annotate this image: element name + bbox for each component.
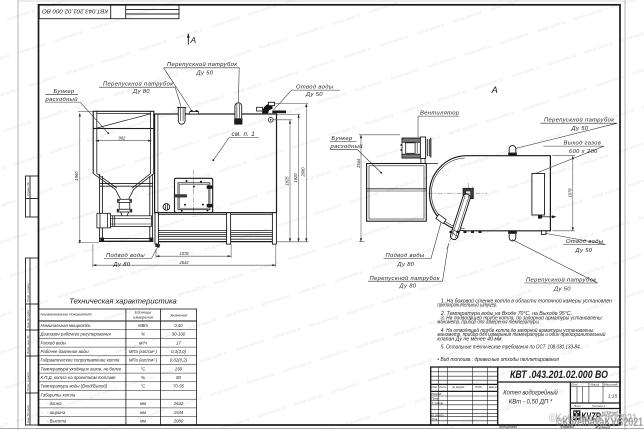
svg-text:70-95: 70-95 (173, 384, 185, 389)
svg-text:Лит.: Лит. (570, 383, 578, 387)
svg-text:Лист: Лист (573, 404, 582, 408)
svg-text:600 х 200: 600 х 200 (569, 149, 598, 155)
svg-text:2080: 2080 (173, 419, 184, 424)
svg-text:м³/ч: м³/ч (139, 340, 148, 345)
svg-text:17: 17 (176, 340, 181, 345)
svg-text:КВТ .043.201.02.000 ВО: КВТ .043.201.02.000 ВО (510, 369, 609, 381)
svg-text:А: А (491, 85, 498, 96)
svg-text:30-100: 30-100 (172, 332, 186, 337)
svg-text:Подп. и дата: Подп. и дата (26, 372, 30, 391)
svg-text:Перепускной патрубок: Перепускной патрубок (526, 276, 596, 283)
svg-text:Габариты котла: Габариты котла (41, 392, 76, 397)
svg-text:КВТ.043.201.02.000 ВО: КВТ.043.201.02.000 ВО (41, 8, 108, 14)
svg-text:0,02(0,2): 0,02(0,2) (170, 358, 188, 363)
svg-text:Масса: Масса (591, 383, 600, 387)
svg-text:- длина: - длина (47, 401, 62, 406)
svg-text:Диапазон рабочего регулировани: Диапазон рабочего регулирования (40, 332, 112, 337)
svg-text:мм: мм (140, 419, 146, 424)
svg-text:МВт: МВт (138, 323, 148, 328)
svg-text:- ширина: - ширина (47, 410, 66, 415)
svg-text:%: % (141, 375, 145, 380)
svg-text:Ду 50: Ду 50 (571, 126, 589, 132)
svg-text:см. п. 1: см. п. 1 (232, 131, 255, 138)
svg-text:Бункер: Бункер (54, 89, 75, 95)
svg-text:1920: 1920 (293, 173, 298, 183)
svg-text:Номинальная мощность: Номинальная мощность (41, 323, 92, 328)
svg-text:Отвод воды: Отвод воды (566, 239, 604, 245)
svg-text:А: А (190, 35, 197, 45)
svg-text:Расход воды: Расход воды (41, 340, 67, 345)
svg-text:80: 80 (176, 375, 181, 380)
svg-text:Ду 80: Ду 80 (132, 89, 150, 95)
svg-text:• Вид топлива : древесные от: • Вид топлива : древесные отходы пеллети… (437, 357, 559, 363)
svg-text:Подвод воды: Подвод воды (106, 253, 145, 259)
svg-text:КВт - 0,50 ДП *: КВт - 0,50 ДП * (509, 398, 553, 405)
svg-text:230: 230 (174, 366, 183, 371)
svg-text:Подп.: Подп. (475, 385, 483, 389)
svg-text:1544: 1544 (356, 158, 361, 168)
svg-text:Копировал: Копировал (499, 425, 517, 429)
svg-text:Техническая характеристика: Техническая характеристика (69, 297, 177, 306)
svg-text:измерения: измерения (133, 315, 154, 320)
svg-text:1960: 1960 (74, 171, 79, 181)
svg-text:Выход газов: Выход газов (564, 141, 602, 147)
svg-text:Лист: Лист (438, 385, 447, 389)
svg-text:МПа (кгс/см² ): МПа (кгс/см² ) (129, 358, 158, 363)
svg-text:Подп. и дата: Подп. и дата (26, 283, 30, 302)
svg-text:1078: 1078 (567, 188, 572, 198)
svg-text:Значение: Значение (170, 313, 188, 318)
svg-text:Справ. №: Справ. № (26, 182, 30, 196)
svg-text:Рудный: Рудный (596, 424, 611, 429)
svg-text:2642: 2642 (173, 401, 184, 406)
svg-text:Дата: Дата (488, 385, 497, 389)
svg-text:Листов 1: Листов 1 (591, 404, 605, 408)
svg-text:Перепускной патрубок: Перепускной патрубок (167, 61, 237, 68)
svg-text:мм: мм (140, 410, 146, 415)
svg-text:Утв.: Утв. (432, 417, 439, 421)
svg-text:Перепускной патрубок: Перепускной патрубок (103, 81, 173, 88)
svg-text:расходный: расходный (45, 96, 79, 103)
svg-text:1078: 1078 (179, 251, 189, 256)
svg-text:Ду 80: Ду 80 (397, 262, 415, 268)
svg-text:2080: 2080 (301, 167, 306, 178)
svg-text:Ду 80: Ду 80 (113, 262, 131, 268)
svg-text:Котел водогрейный: Котел водогрейный (503, 388, 558, 396)
svg-text:№ докум.: № докум. (452, 385, 465, 389)
svg-text:мм: мм (140, 401, 146, 406)
svg-text:Гидравлическое сопротивление к: Гидравлическое сопротивление котла (41, 358, 121, 363)
svg-text:- Высота: - Высота (47, 419, 67, 424)
svg-text:Ду 50: Ду 50 (575, 248, 593, 254)
svg-text:Ду 50: Ду 50 (553, 286, 571, 292)
svg-text:Перепускной патрубок: Перепускной патрубок (544, 117, 614, 124)
svg-text:5. Остальные технические треб: 5. Остальные технические требования по О… (441, 344, 581, 350)
svg-text:%: % (141, 332, 145, 337)
svg-text:Ду 50: Ду 50 (196, 70, 214, 76)
svg-text:Взам. инв. №: Взам. инв. № (26, 335, 30, 354)
svg-text:клапан Ду не менее 40 мм.: клапан Ду не менее 40 мм. (437, 336, 503, 342)
svg-text:Температура воды (Вход/Выход): Температура воды (Вход/Выход) (41, 384, 108, 389)
svg-text:МПа (кгс/см² ): МПа (кгс/см² ) (129, 349, 158, 354)
svg-text:Т. контр.: Т. контр. (432, 401, 445, 405)
svg-text:манометр, прибор для измерени: манометр, прибор для измерения температу… (437, 320, 540, 326)
svg-text:Пров.: Пров. (432, 396, 440, 400)
svg-text:Наименование показателя: Наименование показателя (41, 312, 93, 317)
svg-text:Масштаб: Масштаб (604, 383, 618, 387)
svg-text:Рабочее давление воды: Рабочее давление воды (41, 349, 90, 354)
svg-text:Инв. № дубл.: Инв. № дубл. (26, 309, 30, 328)
svg-text:Отвод воды: Отвод воды (296, 84, 334, 90)
svg-text:расходный: расходный (330, 143, 364, 150)
svg-text:1825: 1825 (284, 176, 289, 186)
svg-text:Перепускной патрубок: Перепускной патрубок (370, 275, 440, 282)
svg-text:Инв. № подл.: Инв. № подл. (26, 404, 30, 423)
svg-text:предохранительный штуцер.: предохранительный штуцер. (437, 302, 497, 309)
svg-text:Изм: Изм (432, 385, 437, 389)
svg-text:Ду 50: Ду 50 (305, 92, 323, 98)
svg-text:2643: 2643 (178, 260, 189, 265)
svg-text:Подвод воды: Подвод воды (386, 253, 425, 259)
svg-text:Вентилятор: Вентилятор (420, 111, 460, 117)
svg-text:902: 902 (119, 135, 127, 140)
svg-text:1544: 1544 (174, 410, 184, 415)
svg-text:К.П.Д. котла на проектном топл: К.П.Д. котла на проектном топливе (41, 375, 117, 380)
svg-text:0,3(3,0): 0,3(3,0) (171, 349, 186, 354)
svg-text:1:15: 1:15 (608, 394, 618, 400)
svg-text:Бункер: Бункер (332, 136, 353, 142)
svg-text:0,50: 0,50 (174, 323, 183, 328)
svg-text:Температура уходящих газов, не: Температура уходящих газов, не более (41, 366, 122, 371)
svg-text:Ду 80: Ду 80 (399, 284, 417, 290)
